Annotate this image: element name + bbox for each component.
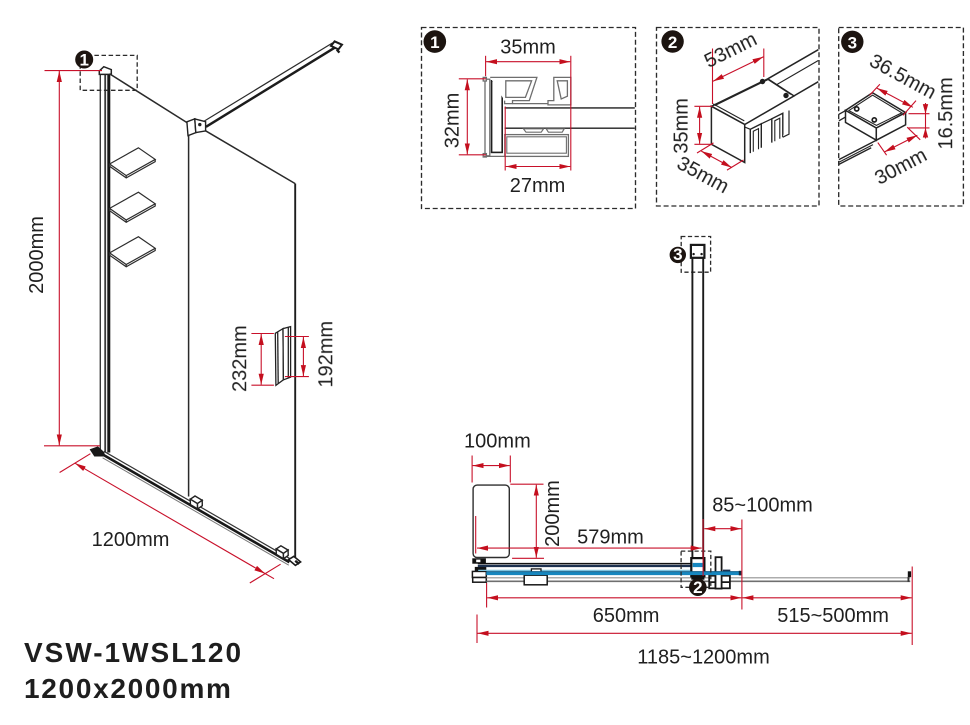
svg-text:1: 1: [79, 51, 88, 70]
svg-text:VSW-1WSL120: VSW-1WSL120: [24, 637, 243, 668]
svg-text:1200x2000mm: 1200x2000mm: [24, 673, 233, 704]
svg-text:35mm: 35mm: [671, 98, 693, 154]
svg-text:100mm: 100mm: [464, 431, 531, 453]
svg-text:650mm: 650mm: [593, 605, 660, 627]
svg-text:515~500mm: 515~500mm: [777, 605, 889, 627]
svg-text:1200mm: 1200mm: [92, 529, 170, 551]
svg-text:85~100mm: 85~100mm: [712, 495, 813, 517]
svg-text:27mm: 27mm: [510, 175, 566, 197]
svg-text:192mm: 192mm: [315, 321, 337, 388]
svg-text:1: 1: [430, 33, 439, 52]
svg-text:2: 2: [693, 578, 702, 597]
svg-text:32mm: 32mm: [442, 93, 464, 149]
svg-text:2: 2: [668, 33, 677, 52]
svg-text:2000mm: 2000mm: [26, 216, 48, 294]
svg-text:3: 3: [673, 245, 682, 264]
svg-text:579mm: 579mm: [577, 526, 644, 548]
svg-text:3: 3: [848, 33, 857, 52]
svg-text:35mm: 35mm: [500, 36, 556, 58]
svg-text:232mm: 232mm: [229, 325, 251, 392]
svg-text:200mm: 200mm: [542, 480, 564, 547]
svg-text:16.5mm: 16.5mm: [935, 77, 957, 149]
svg-text:1185~1200mm: 1185~1200mm: [637, 647, 770, 669]
